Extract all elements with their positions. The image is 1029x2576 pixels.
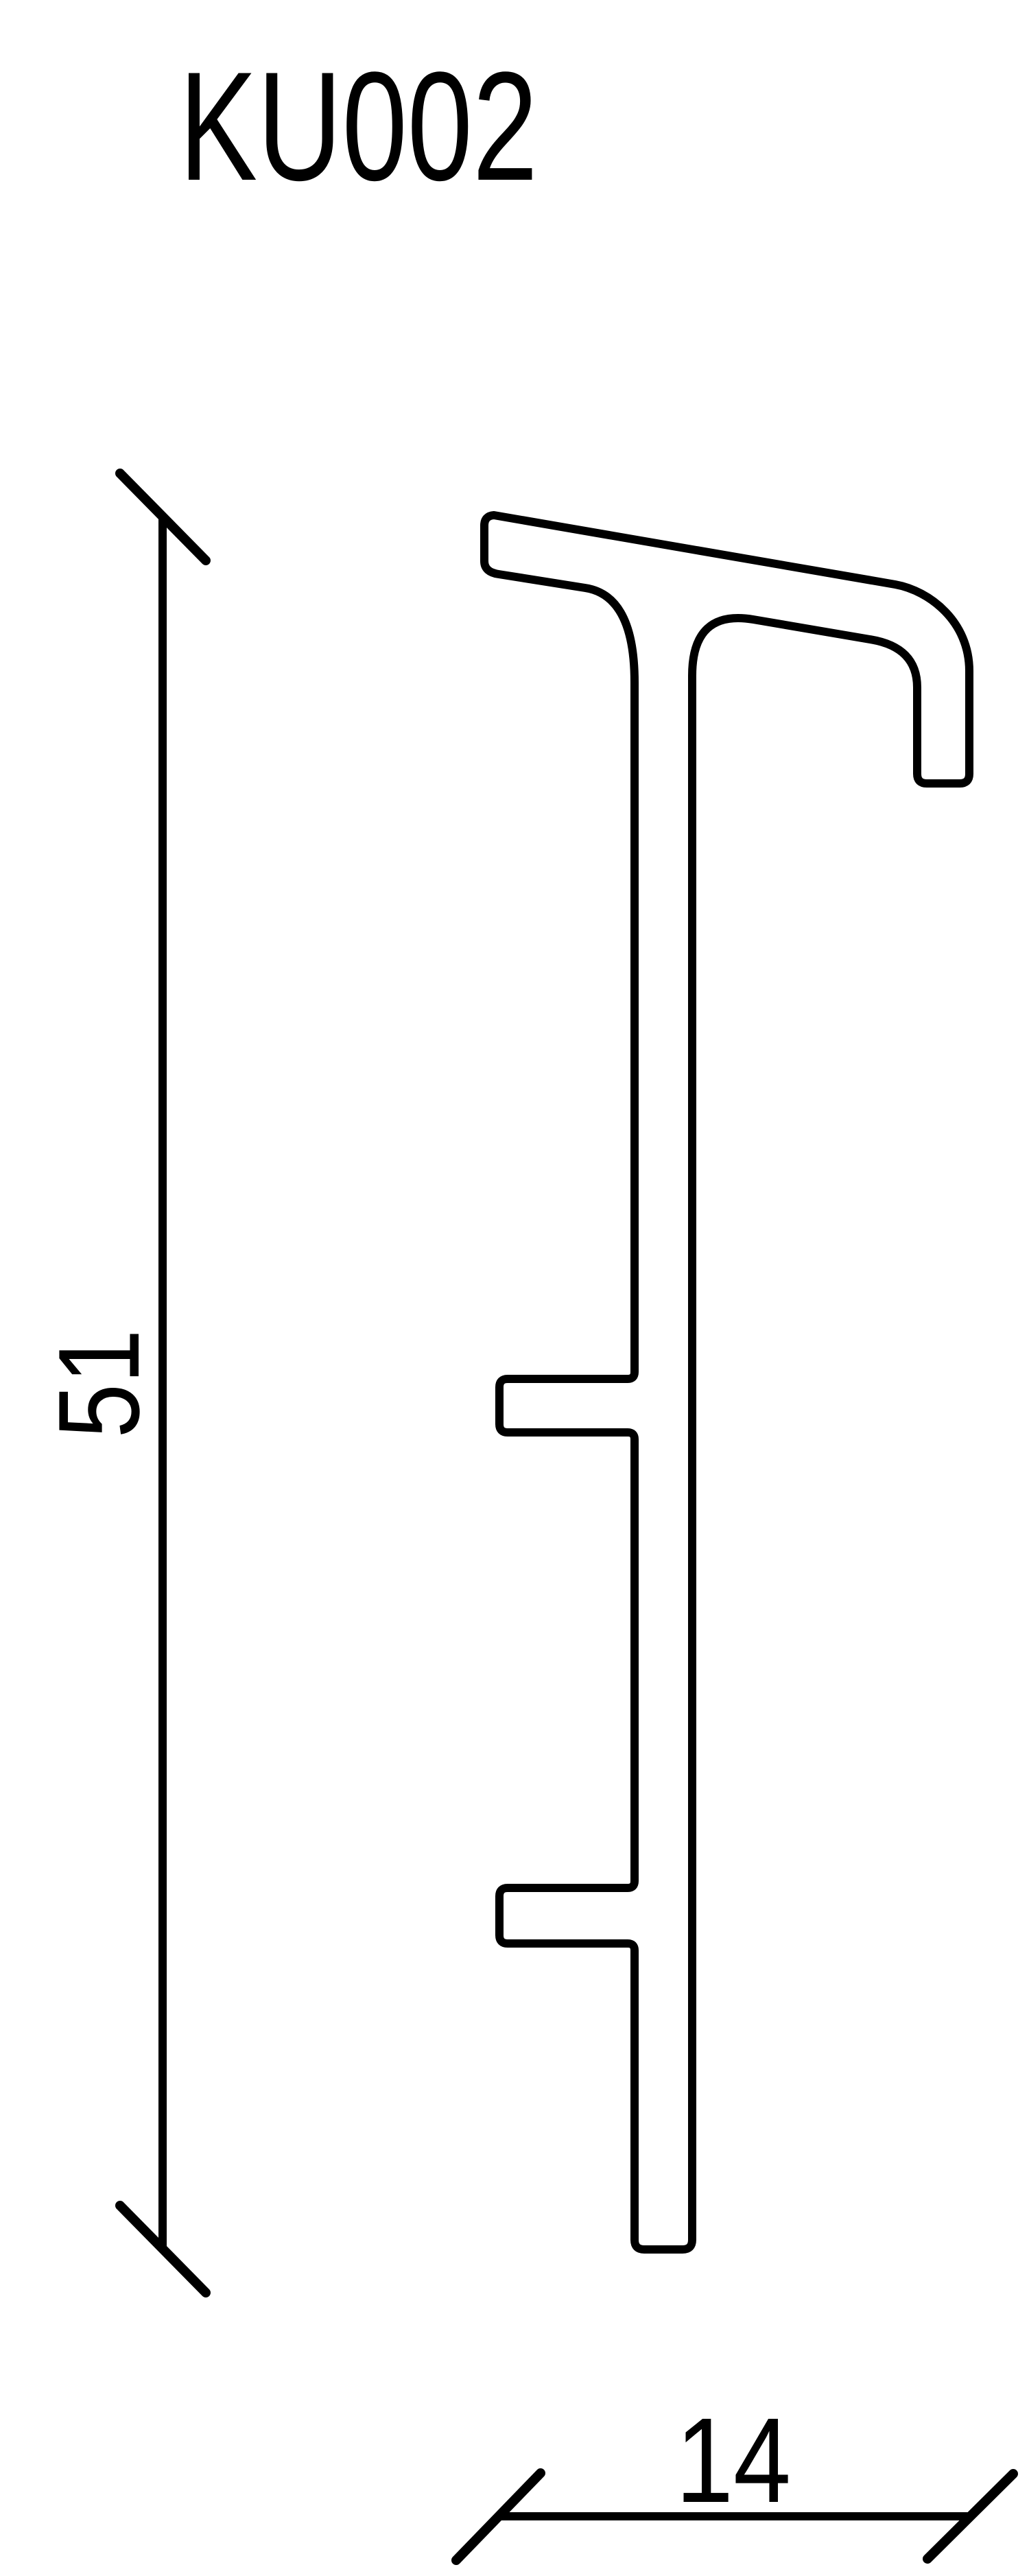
height-dimension: 51 [34, 473, 206, 2293]
drawing-page: KU002 51 14 [0, 0, 1029, 2576]
profile-outline [484, 515, 969, 2249]
height-dimension-label: 51 [34, 1330, 163, 1439]
depth-dimension-label: 14 [676, 2394, 791, 2528]
depth-dimension: 14 [456, 2394, 1013, 2560]
technical-drawing-canvas: KU002 51 14 [0, 0, 1029, 2576]
page-title: KU002 [179, 39, 538, 213]
